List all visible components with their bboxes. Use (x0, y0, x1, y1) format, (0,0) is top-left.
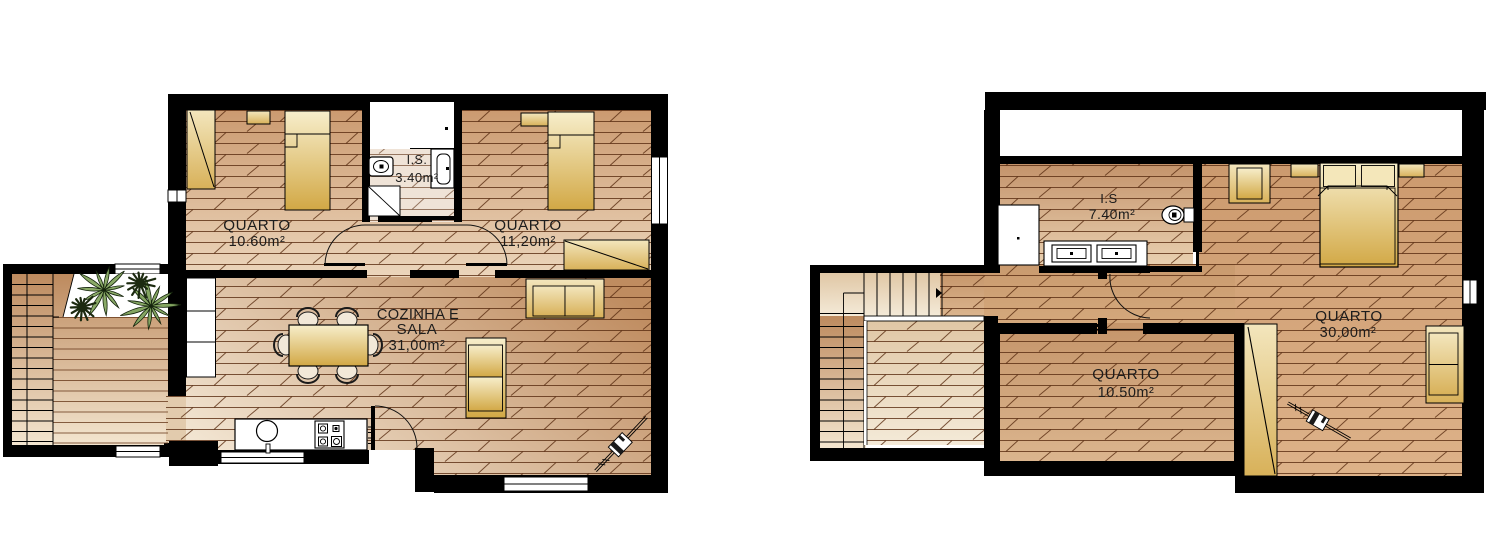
svg-text:QUARTO: QUARTO (1315, 308, 1382, 325)
svg-text:I.S: I.S (1100, 191, 1117, 206)
svg-text:10.60m²: 10.60m² (229, 234, 286, 250)
svg-text:I.S.: I.S. (407, 153, 428, 167)
svg-text:QUARTO: QUARTO (494, 217, 561, 234)
svg-text:3.40m²: 3.40m² (395, 170, 439, 185)
svg-text:31,00m²: 31,00m² (389, 338, 446, 354)
svg-text:SALA: SALA (397, 321, 438, 338)
svg-text:QUARTO: QUARTO (1092, 366, 1159, 383)
svg-text:11,20m²: 11,20m² (500, 234, 556, 250)
svg-text:QUARTO: QUARTO (223, 217, 290, 234)
svg-text:7.40m²: 7.40m² (1089, 206, 1136, 222)
svg-text:10.50m²: 10.50m² (1098, 385, 1155, 401)
svg-text:30.00m²: 30.00m² (1320, 325, 1377, 341)
